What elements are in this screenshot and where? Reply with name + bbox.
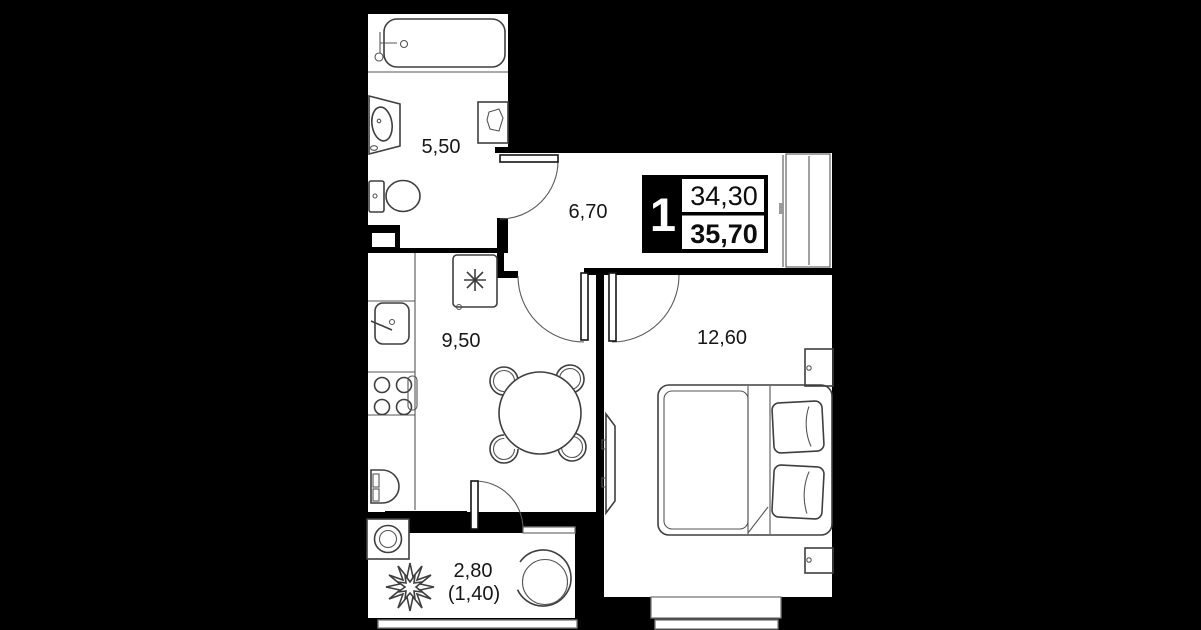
label-bathroom-area: 5,50 [422,136,461,158]
floorplan-canvas: 1 34,30 35,70 5,50 6,70 9,50 12,60 2,80 … [0,0,1201,630]
asterisk-icon [464,269,486,291]
wall-bathroom-right [497,218,508,253]
wall-hallway-top [495,147,832,153]
balcony-glazing [378,620,577,628]
label-kitchen-area: 9,50 [442,330,481,352]
vent-shaft-opening [372,233,395,247]
bedroom-window-bay [651,597,781,618]
wall-hallway-bottom-left [497,271,518,278]
kitchen-window [523,527,575,533]
room-bathroom [368,14,508,250]
label-balcony-area-reduced: (1,40) [448,583,500,605]
badge-lower-area: 35,70 [690,219,758,249]
label-bedroom-area: 12,60 [697,327,747,349]
label-balcony-area: 2,80 [454,560,493,582]
wall-balcony-right [575,512,604,623]
wall-hallway-bottom-right [677,268,832,275]
label-hallway-area: 6,70 [569,201,608,223]
bedroom-window-sill [655,620,778,629]
badge-upper-area: 34,30 [690,181,758,211]
unit-info-badge: 1 34,30 35,70 [644,177,766,251]
wardrobe-handle [779,203,784,214]
washing-machine-icon [367,519,409,559]
badge-divider [682,212,766,216]
apartment-floorplan: 1 34,30 35,70 5,50 6,70 9,50 12,60 2,80 … [0,0,1201,630]
dining-table-icon [499,372,581,454]
badge-rooms-count: 1 [650,188,676,241]
room-bedroom [604,275,832,597]
